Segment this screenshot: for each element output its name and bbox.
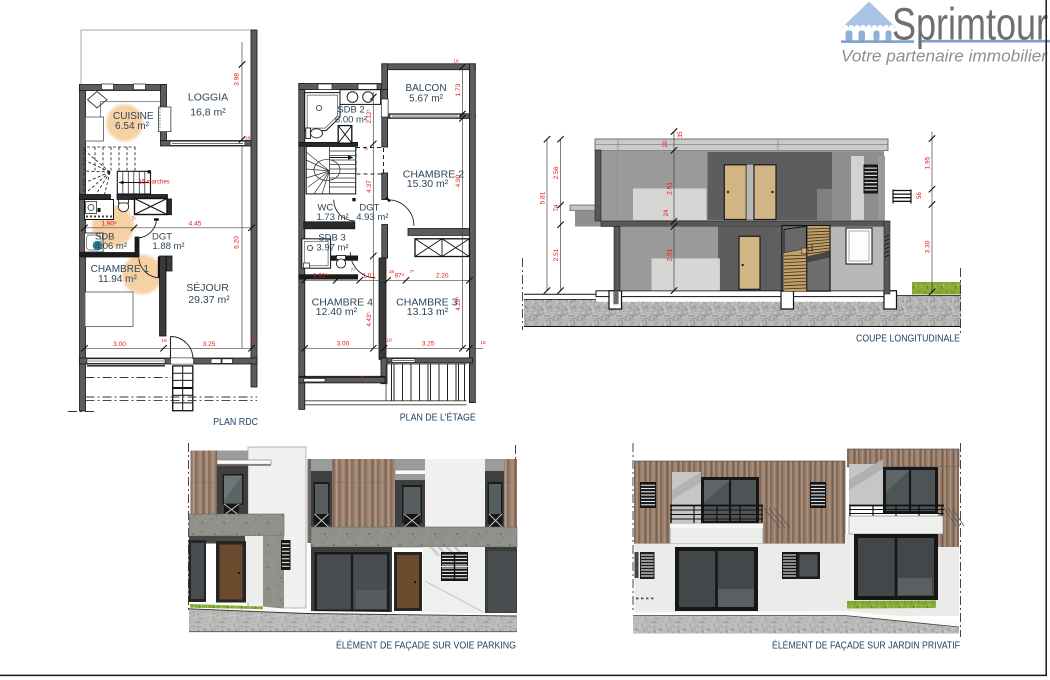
svg-text:ÉLÉMENT DE FAÇADE SUR JARDIN P: ÉLÉMENT DE FAÇADE SUR JARDIN PRIVATIF [772, 639, 960, 652]
svg-text:1.90⁵: 1.90⁵ [101, 220, 117, 227]
svg-text:BALCON: BALCON [405, 83, 446, 94]
svg-text:7⁵: 7⁵ [364, 147, 369, 153]
svg-text:35: 35 [678, 131, 684, 138]
svg-text:16,8 m²: 16,8 m² [190, 107, 226, 119]
svg-text:20: 20 [360, 376, 366, 382]
svg-text:1.95: 1.95 [924, 156, 931, 169]
svg-text:4.45: 4.45 [189, 220, 202, 227]
svg-text:5.81: 5.81 [540, 191, 547, 204]
svg-text:4.06 m²: 4.06 m² [95, 241, 127, 252]
svg-text:6.00 m²: 6.00 m² [335, 115, 367, 126]
svg-text:4.93 m²: 4.93 m² [356, 212, 388, 223]
svg-text:16 marches: 16 marches [138, 180, 169, 186]
svg-text:2.20: 2.20 [436, 273, 449, 280]
svg-text:24: 24 [664, 209, 670, 216]
svg-text:97⁵: 97⁵ [395, 273, 405, 280]
svg-text:11.94 m²: 11.94 m² [98, 274, 137, 285]
svg-text:3.00: 3.00 [113, 341, 126, 348]
svg-text:74: 74 [553, 204, 560, 212]
svg-text:PLAN DE L'ÉTAGE: PLAN DE L'ÉTAGE [400, 411, 476, 424]
svg-text:Votre partenaire immobilier: Votre partenaire immobilier [841, 47, 1048, 66]
svg-text:12.40 m²: 12.40 m² [316, 306, 358, 318]
svg-text:4.37: 4.37 [366, 180, 373, 193]
svg-text:7⁵: 7⁵ [351, 268, 356, 274]
svg-text:18: 18 [161, 338, 167, 344]
svg-text:18: 18 [245, 136, 251, 142]
svg-text:1.91⁵: 1.91⁵ [313, 273, 329, 280]
svg-text:18: 18 [389, 269, 395, 275]
svg-text:6.20: 6.20 [234, 236, 241, 249]
svg-text:15.30 m²: 15.30 m² [407, 178, 449, 190]
svg-text:LOGGIA: LOGGIA [188, 92, 228, 104]
svg-text:Sprimtour: Sprimtour [892, 0, 1048, 50]
svg-text:1.01: 1.01 [362, 273, 375, 280]
svg-text:18: 18 [387, 337, 393, 343]
svg-text:1.73: 1.73 [455, 83, 462, 96]
svg-text:4.43⁵: 4.43⁵ [366, 312, 373, 327]
svg-text:5.67 m²: 5.67 m² [409, 94, 444, 105]
svg-text:7⁵: 7⁵ [409, 269, 414, 275]
svg-text:PLAN RDC: PLAN RDC [213, 417, 258, 428]
svg-text:7⁵: 7⁵ [132, 217, 137, 223]
svg-text:COUPE LONGITUDINALE: COUPE LONGITUDINALE [856, 332, 960, 344]
svg-text:18: 18 [252, 338, 258, 344]
svg-text:20: 20 [663, 140, 669, 147]
svg-text:18: 18 [453, 59, 459, 65]
svg-text:29.37 m²: 29.37 m² [188, 294, 230, 306]
svg-text:3.97 m²: 3.97 m² [316, 242, 348, 253]
svg-text:3.25: 3.25 [422, 341, 435, 348]
svg-text:3.30: 3.30 [924, 240, 931, 253]
svg-text:2.51: 2.51 [667, 182, 674, 195]
svg-text:6.54 m²: 6.54 m² [115, 121, 150, 132]
svg-text:1.73 m²: 1.73 m² [316, 212, 348, 223]
svg-text:1.88 m²: 1.88 m² [152, 241, 184, 252]
svg-text:3.25: 3.25 [203, 341, 216, 348]
svg-text:56: 56 [917, 192, 923, 199]
svg-text:SÉJOUR: SÉJOUR [186, 281, 229, 294]
svg-text:18: 18 [480, 340, 486, 346]
svg-text:2.51: 2.51 [553, 248, 560, 261]
svg-text:13.13 m²: 13.13 m² [407, 306, 449, 318]
svg-text:3.98: 3.98 [234, 73, 241, 86]
svg-text:3.00: 3.00 [337, 341, 350, 348]
svg-text:2.56: 2.56 [553, 166, 560, 179]
svg-text:ÉLÉMENT DE FAÇADE SUR VOIE PAR: ÉLÉMENT DE FAÇADE SUR VOIE PARKING [336, 639, 516, 652]
svg-text:2.51: 2.51 [667, 248, 674, 261]
